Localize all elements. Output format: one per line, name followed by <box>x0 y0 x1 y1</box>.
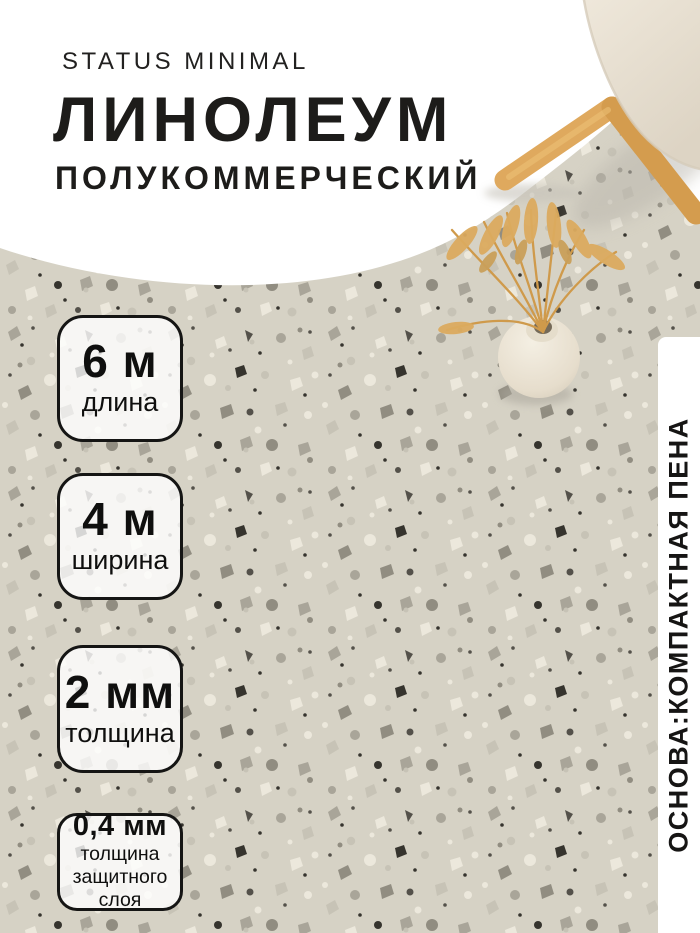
brand-name: STATUS MINIMAL <box>62 48 309 76</box>
spec-value: 4 м <box>82 496 157 542</box>
spec-badge-length: 6 м длина <box>57 315 183 442</box>
spec-badge-thickness: 2 мм толщина <box>57 645 183 773</box>
product-subtitle: ПОЛУКОММЕРЧЕСКИЙ <box>55 160 481 197</box>
spec-badge-width: 4 м ширина <box>57 473 183 600</box>
spec-value: 6 м <box>82 338 157 384</box>
spec-label: ширина <box>72 545 169 576</box>
spec-value: 2 мм <box>65 669 175 715</box>
spec-label-line: слоя <box>99 889 142 912</box>
side-note-strip: ОСНОВА:КОМПАКТНАЯ ПЕНА <box>658 337 700 933</box>
side-note-text: ОСНОВА:КОМПАКТНАЯ ПЕНА <box>664 417 695 852</box>
spec-label-line: толщина <box>80 843 159 866</box>
product-card: ОСНОВА:КОМПАКТНАЯ ПЕНА STATUS MINIMAL ЛИ… <box>0 0 700 933</box>
spec-label: толщина <box>65 718 174 749</box>
spec-label: длина <box>82 387 159 418</box>
spec-label-line: защитного <box>73 866 168 889</box>
product-title: ЛИНОЛЕУМ <box>53 84 453 156</box>
spec-badge-protective-layer: 0,4 мм толщина защитного слоя <box>57 813 183 911</box>
spec-value: 0,4 мм <box>73 812 167 841</box>
